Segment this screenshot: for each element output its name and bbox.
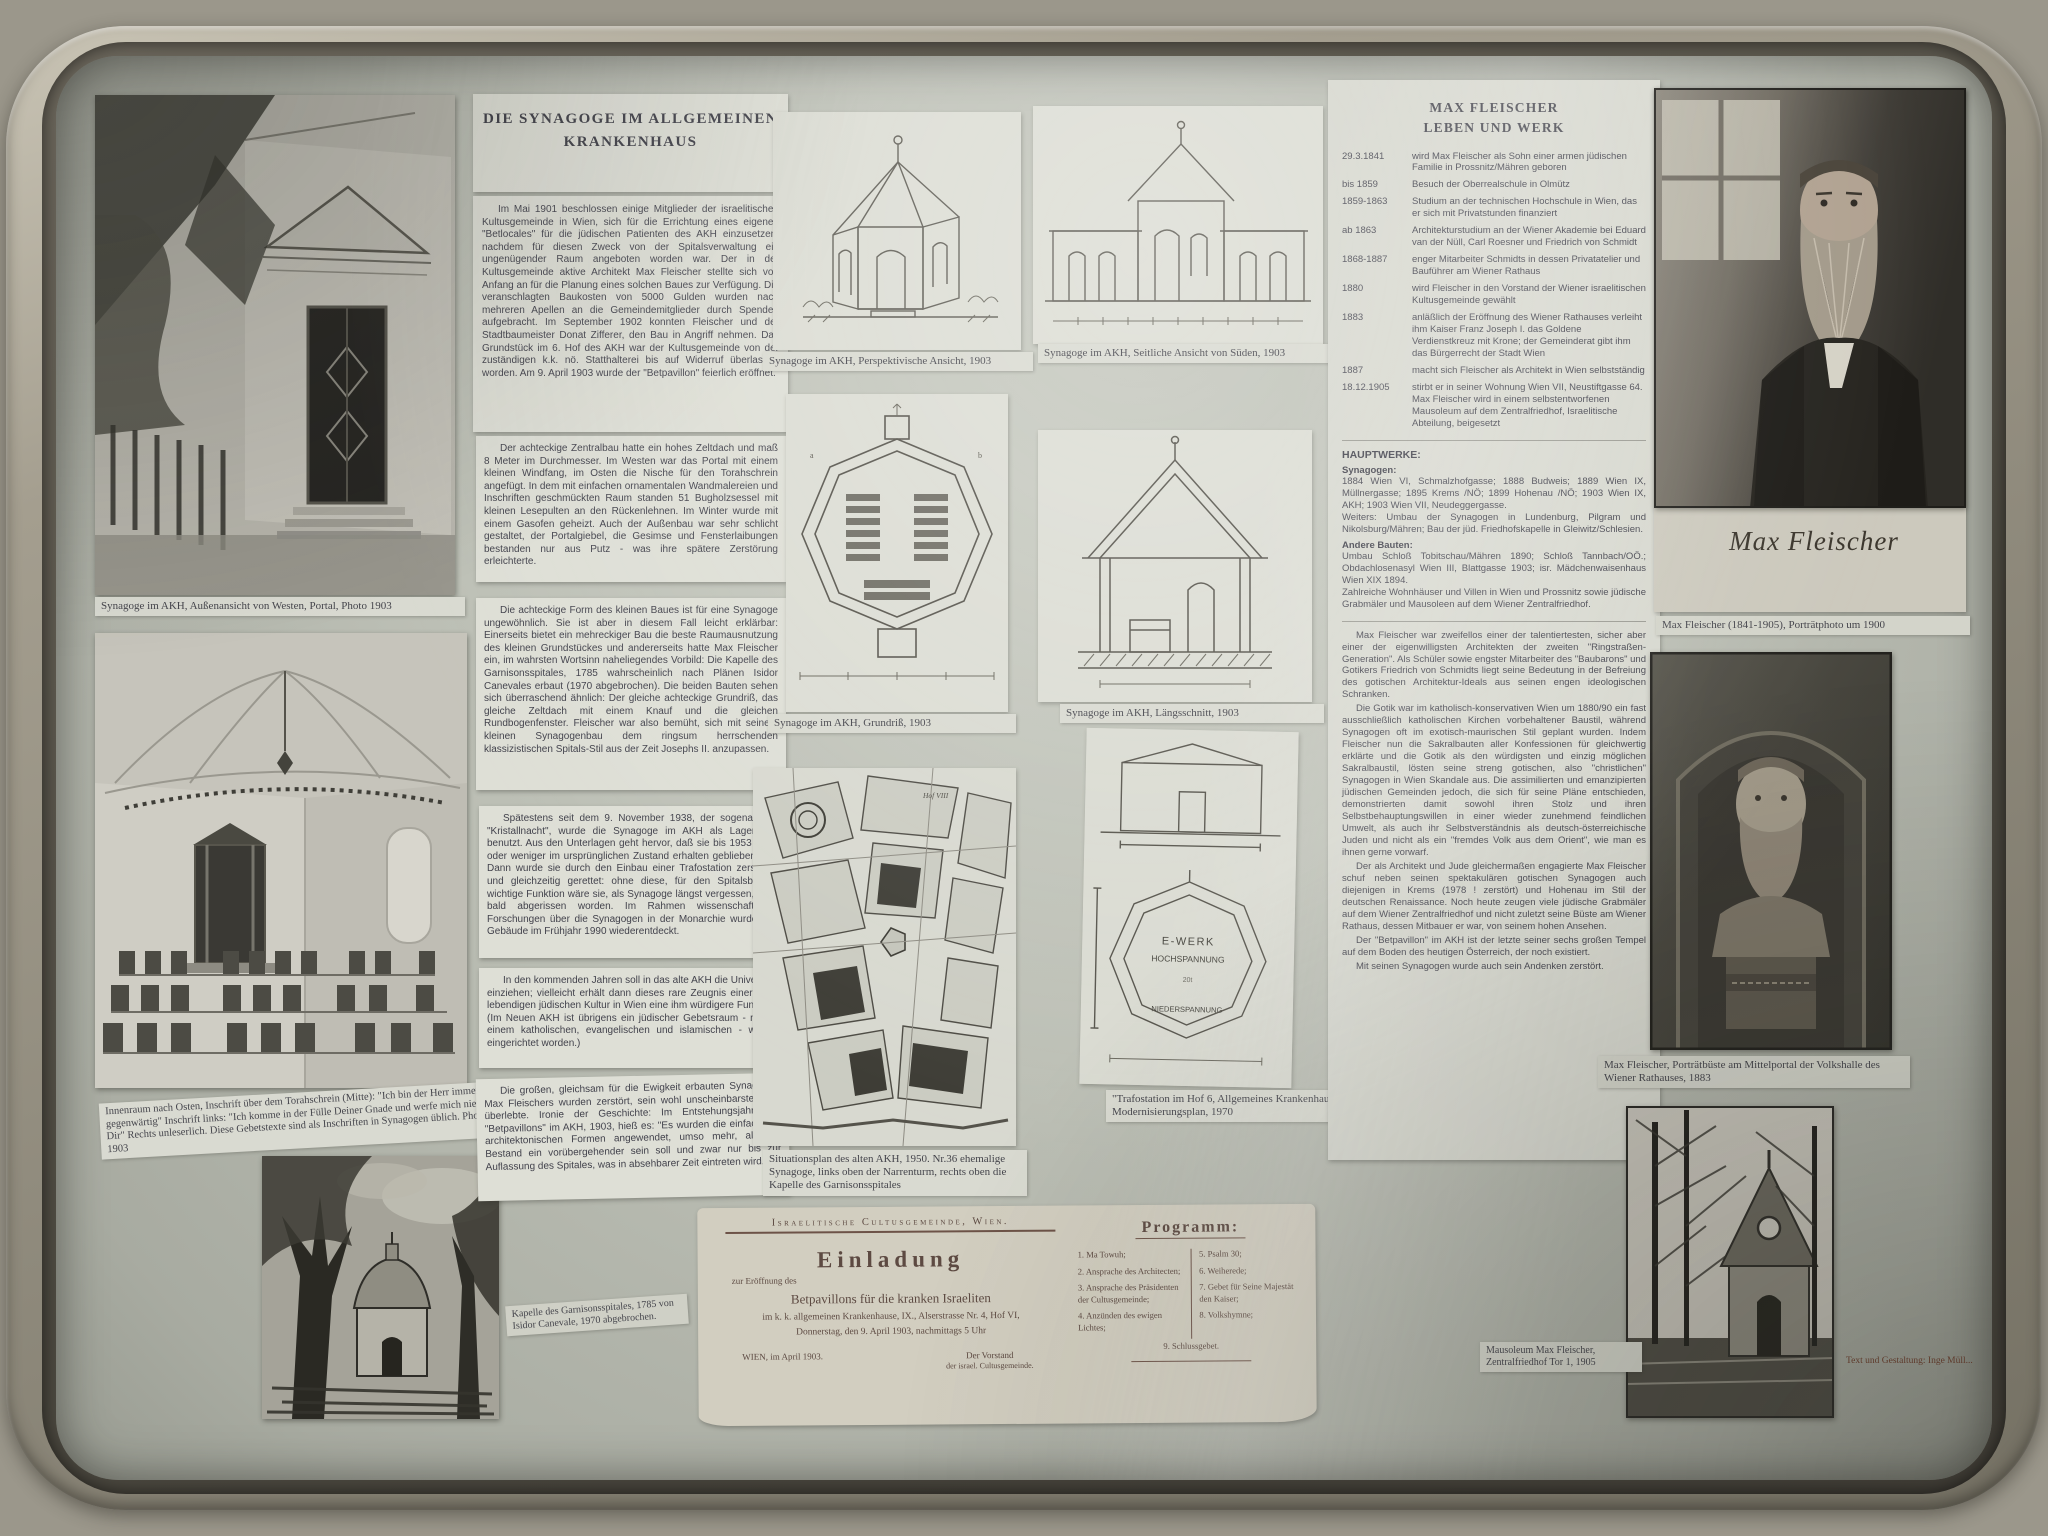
trafostation-plan-drawing: E-WERK HOCHSPANNUNG NIEDERSPANNUNG 20t [1079,728,1298,1088]
programm-item: 2. Ansprache des Architecten; [1078,1265,1183,1277]
article-paragraph-6: Die großen, gleichsam für die Ewigkeit e… [476,1073,790,1202]
invitation-signature: Der Vorstand der israel. Cultusgemeinde. [907,1350,1072,1371]
essay-paragraph: Der als Architekt und Jude gleichermaßen… [1342,861,1646,933]
timeline-row: 1880wird Fleischer in den Vorstand der W… [1342,283,1646,307]
timeline-year: 1859-1863 [1342,196,1412,220]
caption-site-map: Situationsplan des alten AKH, 1950. Nr.3… [763,1150,1027,1196]
timeline-year: bis 1859 [1342,179,1412,191]
timeline-text: Besuch der Oberrealschule in Olmütz [1412,179,1646,191]
photo-bust [1650,652,1892,1050]
invitation-org: Israelitische Cultusgemeinde, Wien. [725,1216,1055,1234]
article-paragraph-4: Spätestens seit dem 9. November 1938, de… [479,806,786,958]
bio-hauptwerke-section: HAUPTWERKE: Synagogen: 1884 Wien VI, Sch… [1342,440,1646,611]
zahlreiche-text: Zahlreiche Wohnhäuser und Villen in Wien… [1342,587,1646,611]
invitation-sig1: Der Vorstand [966,1350,1013,1360]
programm-col1: 1. Ma Towuh; 2. Ansprache des Architecte… [1078,1249,1183,1339]
timeline-text: wird Max Fleischer als Sohn einer armen … [1412,151,1646,175]
programm-item: 4. Anzünden des ewigen Lichtes; [1078,1310,1183,1334]
programm-item: 6. Weiherede; [1199,1265,1304,1277]
portrait-signature: Max Fleischer [1694,526,1934,557]
signature-text: Max Fleischer [1729,526,1899,556]
programm-item: 5. Psalm 30; [1199,1248,1304,1260]
site-map-drawing: Hof VIII [753,768,1016,1146]
caption-portrait: Max Fleischer (1841-1905), Porträtphoto … [1656,616,1970,635]
article-p1-text: Im Mai 1901 beschlossen einige Mitgliede… [482,204,779,380]
timeline-year: 18.12.1905 [1342,382,1412,430]
credit-text: Text und Gestaltung: Inge Müll... [1846,1356,2024,1366]
timeline-row: 1887macht sich Fleischer als Architekt i… [1342,365,1646,377]
programm-item: 1. Ma Towuh; [1078,1249,1183,1261]
svg-text:a: a [810,451,814,460]
programm-item: 3. Ansprache des Präsidenten der Cultusg… [1078,1282,1183,1306]
timeline-row: 29.3.1841wird Max Fleischer als Sohn ein… [1342,151,1646,175]
caption-bust: Max Fleischer, Porträtbüste am Mittelpor… [1598,1056,1910,1088]
drawing-cross-section [1038,430,1312,702]
photo-kapelle-sketch [262,1156,499,1419]
drawing-site-map: Hof VIII [753,768,1016,1146]
timeline-row: 1859-1863Studium an der technischen Hoch… [1342,196,1646,220]
timeline-text: stirbt er in seiner Wohnung Wien VII, Ne… [1412,382,1646,430]
article-paragraph-1: Im Mai 1901 beschlossen einige Mitgliede… [473,196,788,432]
timeline-row: 1868-1887enger Mitarbeiter Schmidts in d… [1342,254,1646,278]
programm-last-item: 9. Schlussgebet. [1078,1339,1304,1351]
invitation-footer: WIEN, im April 1903. Der Vorstand der is… [742,1350,1072,1372]
floor-plan-drawing: a b [786,394,1008,712]
article-title-sheet: DIE SYNAGOGE IM ALLGEMEINEN KRANKENHAUS [473,94,788,192]
drawing-floor-plan: a b [786,394,1008,712]
portal-photo-illustration [95,95,455,595]
hauptwerke-heading: HAUPTWERKE: [1342,449,1646,461]
svg-text:20t: 20t [1183,977,1193,984]
article-p5-text: In den kommenden Jahren soll in das alte… [487,975,778,1051]
article-p3-text: Die achteckige Form des kleinen Baues is… [484,605,778,756]
caption-side-elevation: Synagoge im AKH, Seitliche Ansicht von S… [1038,344,1336,363]
caption-cross-section: Synagoge im AKH, Längsschnitt, 1903 [1060,704,1324,723]
article-paragraph-5: In den kommenden Jahren soll in das alte… [479,968,786,1068]
article-p6-text: Die großen, gleichsam für die Ewigkeit e… [484,1080,782,1174]
article-title: DIE SYNAGOGE IM ALLGEMEINEN KRANKENHAUS [473,94,788,153]
programm-rule [1131,1360,1251,1362]
display-case-photo: Synagoge im AKH, Außenansicht von Westen… [0,0,2048,1536]
photo-interior [95,633,467,1088]
timeline-text: wird Fleischer in den Vorstand der Wiene… [1412,283,1646,307]
mausoleum-photo-illustration [1626,1106,1834,1418]
timeline-row: ab 1863Architekturstudium an der Wiener … [1342,225,1646,249]
invitation-title: Einladung [726,1246,1056,1274]
svg-text:b: b [978,451,982,460]
caption-portal: Synagoge im AKH, Außenansicht von Westen… [95,597,465,616]
perspective-drawing [773,112,1021,350]
article-paragraph-3: Die achteckige Form des kleinen Baues is… [476,598,786,790]
drawing-perspective-view [773,112,1021,350]
portrait-photo-illustration [1654,88,1966,508]
timeline-year: 1887 [1342,365,1412,377]
programm-columns: 1. Ma Towuh; 2. Ansprache des Architecte… [1078,1248,1305,1339]
plan-label-niederspannung: NIEDERSPANNUNG [1151,1004,1222,1014]
photo-mausoleum [1626,1106,1834,1418]
timeline-text: Architekturstudium an der Wiener Akademi… [1412,225,1646,249]
programm-title: Programm: [1135,1218,1245,1239]
bust-photo-illustration [1650,652,1892,1050]
invitation-sheet: Israelitische Cultusgemeinde, Wien. Einl… [697,1204,1317,1426]
article-p2-text: Der achteckige Zentralbau hatte ein hohe… [484,443,778,569]
synagogen-heading: Synagogen: [1342,465,1646,476]
article-p4-text: Spätestens seit dem 9. November 1938, de… [487,813,778,939]
essay-paragraph: Max Fleischer war zweifellos einer der t… [1342,630,1646,702]
timeline-text: macht sich Fleischer als Architekt in Wi… [1412,365,1646,377]
side-elevation-drawing [1033,106,1323,344]
synagogen-list: 1884 Wien VI, Schmalzhofgasse; 1888 Budw… [1342,476,1646,512]
plan-label-ewerk: E-WERK [1162,935,1215,948]
invitation-line4: Donnerstag, den 9. April 1903, nachmitta… [726,1326,1056,1338]
programm-item: 7. Gebet für Seine Majestät den Kaiser; [1199,1281,1304,1305]
caption-floor-plan: Synagoge im AKH, Grundriß, 1903 [768,714,1016,733]
svg-text:Hof VIII: Hof VIII [922,791,949,800]
timeline-year: ab 1863 [1342,225,1412,249]
timeline-year: 1883 [1342,312,1412,360]
article-paragraph-2: Der achteckige Zentralbau hatte ein hohe… [476,436,786,582]
timeline-year: 1880 [1342,283,1412,307]
timeline-text: enger Mitarbeiter Schmidts in dessen Pri… [1412,254,1646,278]
essay-paragraph: Mit seinen Synagogen wurde auch sein And… [1342,961,1646,973]
kapelle-sketch-illustration [262,1156,499,1419]
weiters-text: Weiters: Umbau der Synagogen in Lundenbu… [1342,512,1646,536]
bio-title-line2: LEBEN UND WERK [1423,120,1564,135]
timeline-row: bis 1859Besuch der Oberrealschule in Olm… [1342,179,1646,191]
timeline-year: 29.3.1841 [1342,151,1412,175]
timeline-text: Studium an der technischen Hochschule in… [1412,196,1646,220]
timeline-row: 1883anläßlich der Eröffnung des Wiener R… [1342,312,1646,360]
bio-sheet: MAX FLEISCHER LEBEN UND WERK 29.3.1841wi… [1328,80,1660,1160]
bio-title-line1: MAX FLEISCHER [1429,100,1558,115]
cross-section-drawing [1038,430,1312,702]
caption-perspective: Synagoge im AKH, Perspektivische Ansicht… [763,352,1033,371]
timeline-year: 1868-1887 [1342,254,1412,278]
photo-portal-exterior [95,95,455,595]
essay-paragraph: Der "Betpavillon" im AKH ist der letzte … [1342,935,1646,959]
timeline-text: anläßlich der Eröffnung des Wiener Ratha… [1412,312,1646,360]
drawing-side-elevation [1033,106,1323,344]
programm-col2: 5. Psalm 30; 6. Weiherede; 7. Gebet für … [1199,1248,1304,1338]
interior-photo-illustration [95,633,467,1088]
programm-divider [1190,1249,1191,1339]
photo-portrait [1654,88,1966,508]
programm-item: 8. Volkshymne; [1199,1309,1304,1321]
bio-timeline: 29.3.1841wird Max Fleischer als Sohn ein… [1342,151,1646,430]
timeline-row: 18.12.1905stirbt er in seiner Wohnung Wi… [1342,382,1646,430]
bio-essay: Max Fleischer war zweifellos einer der t… [1342,621,1646,973]
invitation-line3: im k. k. allgemeinen Krankenhause, IX., … [726,1311,1056,1323]
caption-trafostation: "Trafostation im Hof 6, Allgemeines Kran… [1106,1090,1352,1122]
caption-mausoleum: Mausoleum Max Fleischer, Zentralfriedhof… [1480,1342,1642,1372]
essay-paragraph: Die Gotik war im katholisch-konservative… [1342,703,1646,859]
invitation-place-date: WIEN, im April 1903. [742,1351,907,1372]
drawing-trafostation-plan: E-WERK HOCHSPANNUNG NIEDERSPANNUNG 20t [1079,728,1298,1088]
invitation-line2: Betpavillons für die kranken Israeliten [726,1290,1056,1308]
portrait-sheet: Max Fleischer [1654,88,1966,612]
programm-block: Programm: 1. Ma Towuh; 2. Ansprache des … [1077,1218,1304,1362]
invitation-sig2: der israel. Cultusgemeinde. [946,1361,1034,1371]
andere-bauten-list: Umbau Schloß Tobitschau/Mähren 1890; Sch… [1342,551,1646,587]
plan-label-hochspannung: HOCHSPANNUNG [1151,953,1225,965]
bio-title: MAX FLEISCHER LEBEN UND WERK [1342,98,1646,139]
andere-bauten-heading: Andere Bauten: [1342,540,1646,551]
